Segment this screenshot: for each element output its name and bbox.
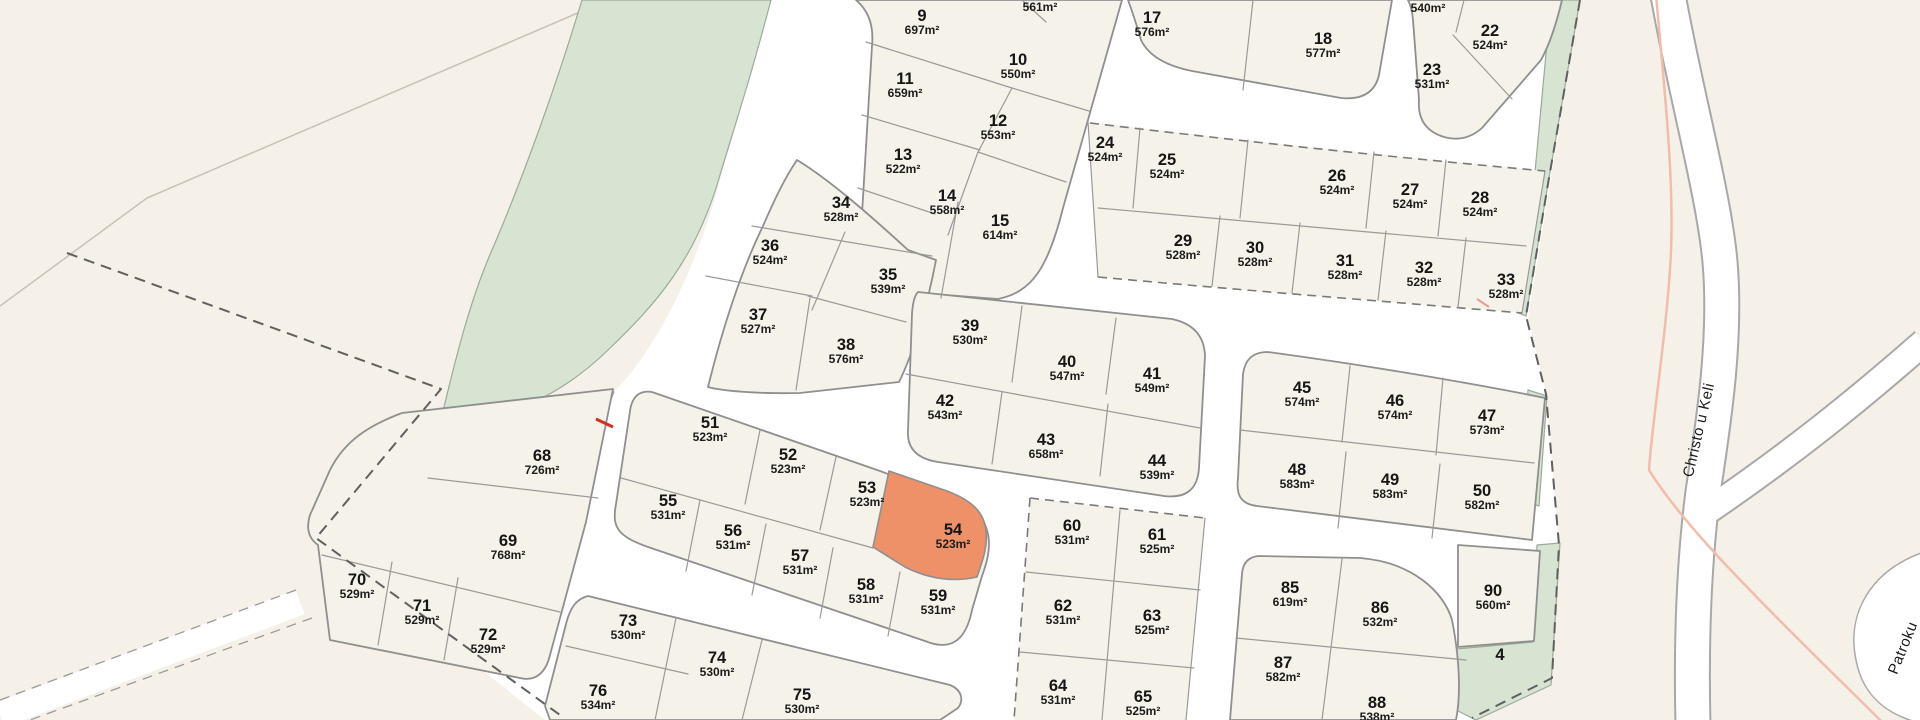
parcel-area-87: 582m²	[1266, 670, 1301, 684]
parcel-area-12: 553m²	[981, 128, 1016, 142]
parcel-area-45: 574m²	[1285, 395, 1320, 409]
parcel-area-70: 529m²	[340, 587, 375, 601]
parcel-area-65: 525m²	[1126, 704, 1161, 718]
parcel-area-90: 560m²	[1476, 598, 1511, 612]
parcel-area-51: 523m²	[693, 430, 728, 444]
parcel-area-58: 531m²	[849, 592, 884, 606]
parcel-area-62: 531m²	[1046, 613, 1081, 627]
parcel-area-48: 583m²	[1280, 477, 1315, 491]
parcel-area-76: 534m²	[581, 698, 616, 712]
parcel-area-9: 697m²	[905, 23, 940, 37]
parcel-area-86: 532m²	[1363, 615, 1398, 629]
parcel-area-35: 539m²	[871, 282, 906, 296]
parcel-area-71: 529m²	[405, 613, 440, 627]
parcel-area-54: 523m²	[936, 537, 971, 551]
parcel-area-43: 658m²	[1029, 447, 1064, 461]
parcel-area-11: 659m²	[888, 86, 923, 100]
parcel-area-85: 619m²	[1273, 595, 1308, 609]
parcel-area-50: 582m²	[1465, 498, 1500, 512]
parcel-area-75: 530m²	[785, 702, 820, 716]
parcel-area-59: 531m²	[921, 603, 956, 617]
parcel-area-14: 558m²	[930, 203, 965, 217]
parcel-area-24: 524m²	[1088, 150, 1123, 164]
parcel-area-32: 528m²	[1407, 275, 1442, 289]
parcel-area-74: 530m²	[700, 665, 735, 679]
parcel-area-44: 539m²	[1140, 468, 1175, 482]
parcel-area-47: 573m²	[1470, 423, 1505, 437]
parcel-area-25: 524m²	[1150, 167, 1185, 181]
parcel-area-18: 577m²	[1306, 46, 1341, 60]
parcel-area-60: 531m²	[1055, 533, 1090, 547]
parcel-area-13: 522m²	[886, 162, 921, 176]
block-lots-85-88	[1230, 556, 1459, 720]
map-viewport: 9697m²10550m²11659m²12553m²13522m²14558m…	[0, 0, 1920, 720]
parcel-area-33: 528m²	[1489, 287, 1524, 301]
parcel-area-52: 523m²	[771, 462, 806, 476]
partial-area-label-1: 540m²	[1411, 1, 1446, 15]
parcel-area-53: 523m²	[850, 495, 885, 509]
parcel-area-40: 547m²	[1050, 369, 1085, 383]
parcel-area-26: 524m²	[1320, 183, 1355, 197]
parcel-area-68: 726m²	[525, 463, 560, 477]
parcel-area-57: 531m²	[783, 563, 818, 577]
subdivision-map: 9697m²10550m²11659m²12553m²13522m²14558m…	[0, 0, 1920, 720]
parcel-area-10: 550m²	[1001, 67, 1036, 81]
parcel-area-17: 576m²	[1135, 25, 1170, 39]
parcel-area-28: 524m²	[1463, 205, 1498, 219]
parcel-area-15: 614m²	[983, 228, 1018, 242]
parcel-area-27: 524m²	[1393, 197, 1428, 211]
parcel-area-88: 538m²	[1360, 710, 1395, 720]
parcel-area-63: 525m²	[1135, 623, 1170, 637]
parcel-area-46: 574m²	[1378, 408, 1413, 422]
parcel-area-36: 524m²	[753, 253, 788, 267]
parcel-area-29: 528m²	[1166, 248, 1201, 262]
parcel-area-31: 528m²	[1328, 268, 1363, 282]
parcel-area-37: 527m²	[741, 322, 776, 336]
parcel-area-39: 530m²	[953, 333, 988, 347]
parcel-area-69: 768m²	[491, 548, 526, 562]
parcel-area-56: 531m²	[716, 538, 751, 552]
parcel-area-34: 528m²	[824, 210, 859, 224]
parcel-area-73: 530m²	[611, 628, 646, 642]
parcel-area-72: 529m²	[471, 642, 506, 656]
parcel-area-42: 543m²	[928, 408, 963, 422]
parcel-area-49: 583m²	[1373, 487, 1408, 501]
parcel-area-38: 576m²	[829, 352, 864, 366]
parcel-area-61: 525m²	[1140, 542, 1175, 556]
partial-area-label-0: 561m²	[1023, 0, 1058, 14]
block-lots-60-65	[1014, 498, 1205, 720]
parcel-area-55: 531m²	[651, 508, 686, 522]
parcel-number-4[interactable]: 4	[1495, 646, 1505, 664]
parcel-area-22: 524m²	[1473, 38, 1508, 52]
parcel-area-30: 528m²	[1238, 255, 1273, 269]
parcel-area-41: 549m²	[1135, 381, 1170, 395]
parcel-area-64: 531m²	[1041, 693, 1076, 707]
parcel-area-23: 531m²	[1415, 77, 1450, 91]
